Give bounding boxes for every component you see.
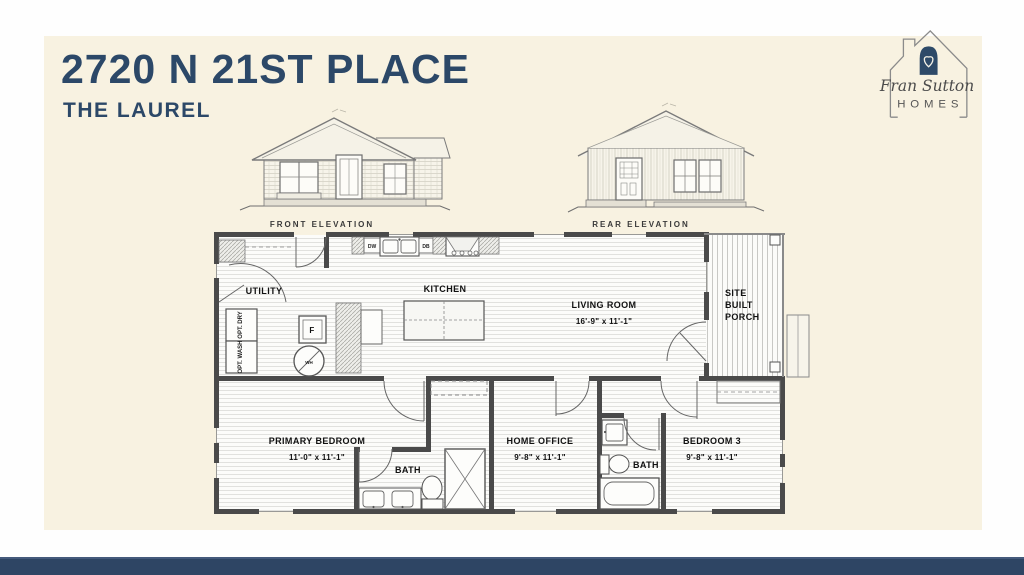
- porch-label-3: PORCH: [725, 312, 760, 322]
- room-label-primary-bath: BATH: [395, 465, 421, 475]
- flyer-page: 2720 N 21ST PLACE THE LAUREL Fran Sutton…: [0, 0, 1024, 575]
- drawer-base-label: DB: [422, 244, 430, 250]
- room-label-kitchen: KITCHEN: [424, 284, 467, 294]
- dishwasher-label: DW: [368, 244, 377, 250]
- front-window-right: [384, 164, 406, 194]
- plan-name-subtitle: THE LAUREL: [63, 99, 211, 123]
- room-dims-primary-bedroom: 11'-0" x 11'-1": [289, 453, 345, 462]
- footer-accent-band: [0, 557, 1024, 575]
- toilet: [600, 455, 629, 474]
- bathtub: [600, 478, 659, 509]
- room-dims-bedroom3: 9'-8" x 11'-1": [686, 453, 738, 462]
- room-label-middle-bath: BATH: [633, 460, 659, 470]
- front-elevation-label: FRONT ELEVATION: [222, 220, 422, 229]
- logo-script-text: Fran Sutton: [879, 77, 974, 95]
- room-label-bedroom3: BEDROOM 3: [683, 436, 741, 446]
- shower: [445, 449, 485, 509]
- room-label-primary-bedroom: PRIMARY BEDROOM: [269, 436, 366, 446]
- toilet: [422, 476, 443, 509]
- builder-logo: Fran Sutton HOMES: [866, 8, 988, 132]
- furnace-label: F: [309, 326, 314, 335]
- room-dims-home-office: 9'-8" x 11'-1": [514, 453, 566, 462]
- room-dims-living: 16'-9" x 11'-1": [576, 317, 632, 326]
- rear-elevation-drawing: [566, 96, 766, 218]
- room-label-utility: UTILITY: [246, 286, 283, 296]
- kitchen-island: [404, 301, 484, 340]
- front-window-left: [277, 162, 321, 199]
- porch-steps: [787, 315, 809, 377]
- range: [446, 237, 479, 256]
- front-elevation-drawing: [236, 98, 454, 218]
- logo-door: [920, 46, 938, 74]
- opt-dry-label: OPT. DRY: [238, 311, 244, 338]
- rear-door: [616, 158, 642, 200]
- logo-homes-text: HOMES: [897, 98, 963, 110]
- page-title: 2720 N 21ST PLACE: [61, 46, 470, 93]
- floor-plan: OPT. DRY OPT. WASH F WH DW DB: [212, 230, 812, 522]
- opt-wash-label: OPT. WASH: [238, 340, 244, 373]
- porch-label-2: BUILT: [725, 300, 753, 310]
- room-label-living: LIVING ROOM: [572, 300, 637, 310]
- water-heater-label: WH: [305, 360, 313, 365]
- rear-elevation-label: REAR ELEVATION: [566, 220, 716, 229]
- room-label-home-office: HOME OFFICE: [507, 436, 574, 446]
- porch-label-1: SITE: [725, 288, 747, 298]
